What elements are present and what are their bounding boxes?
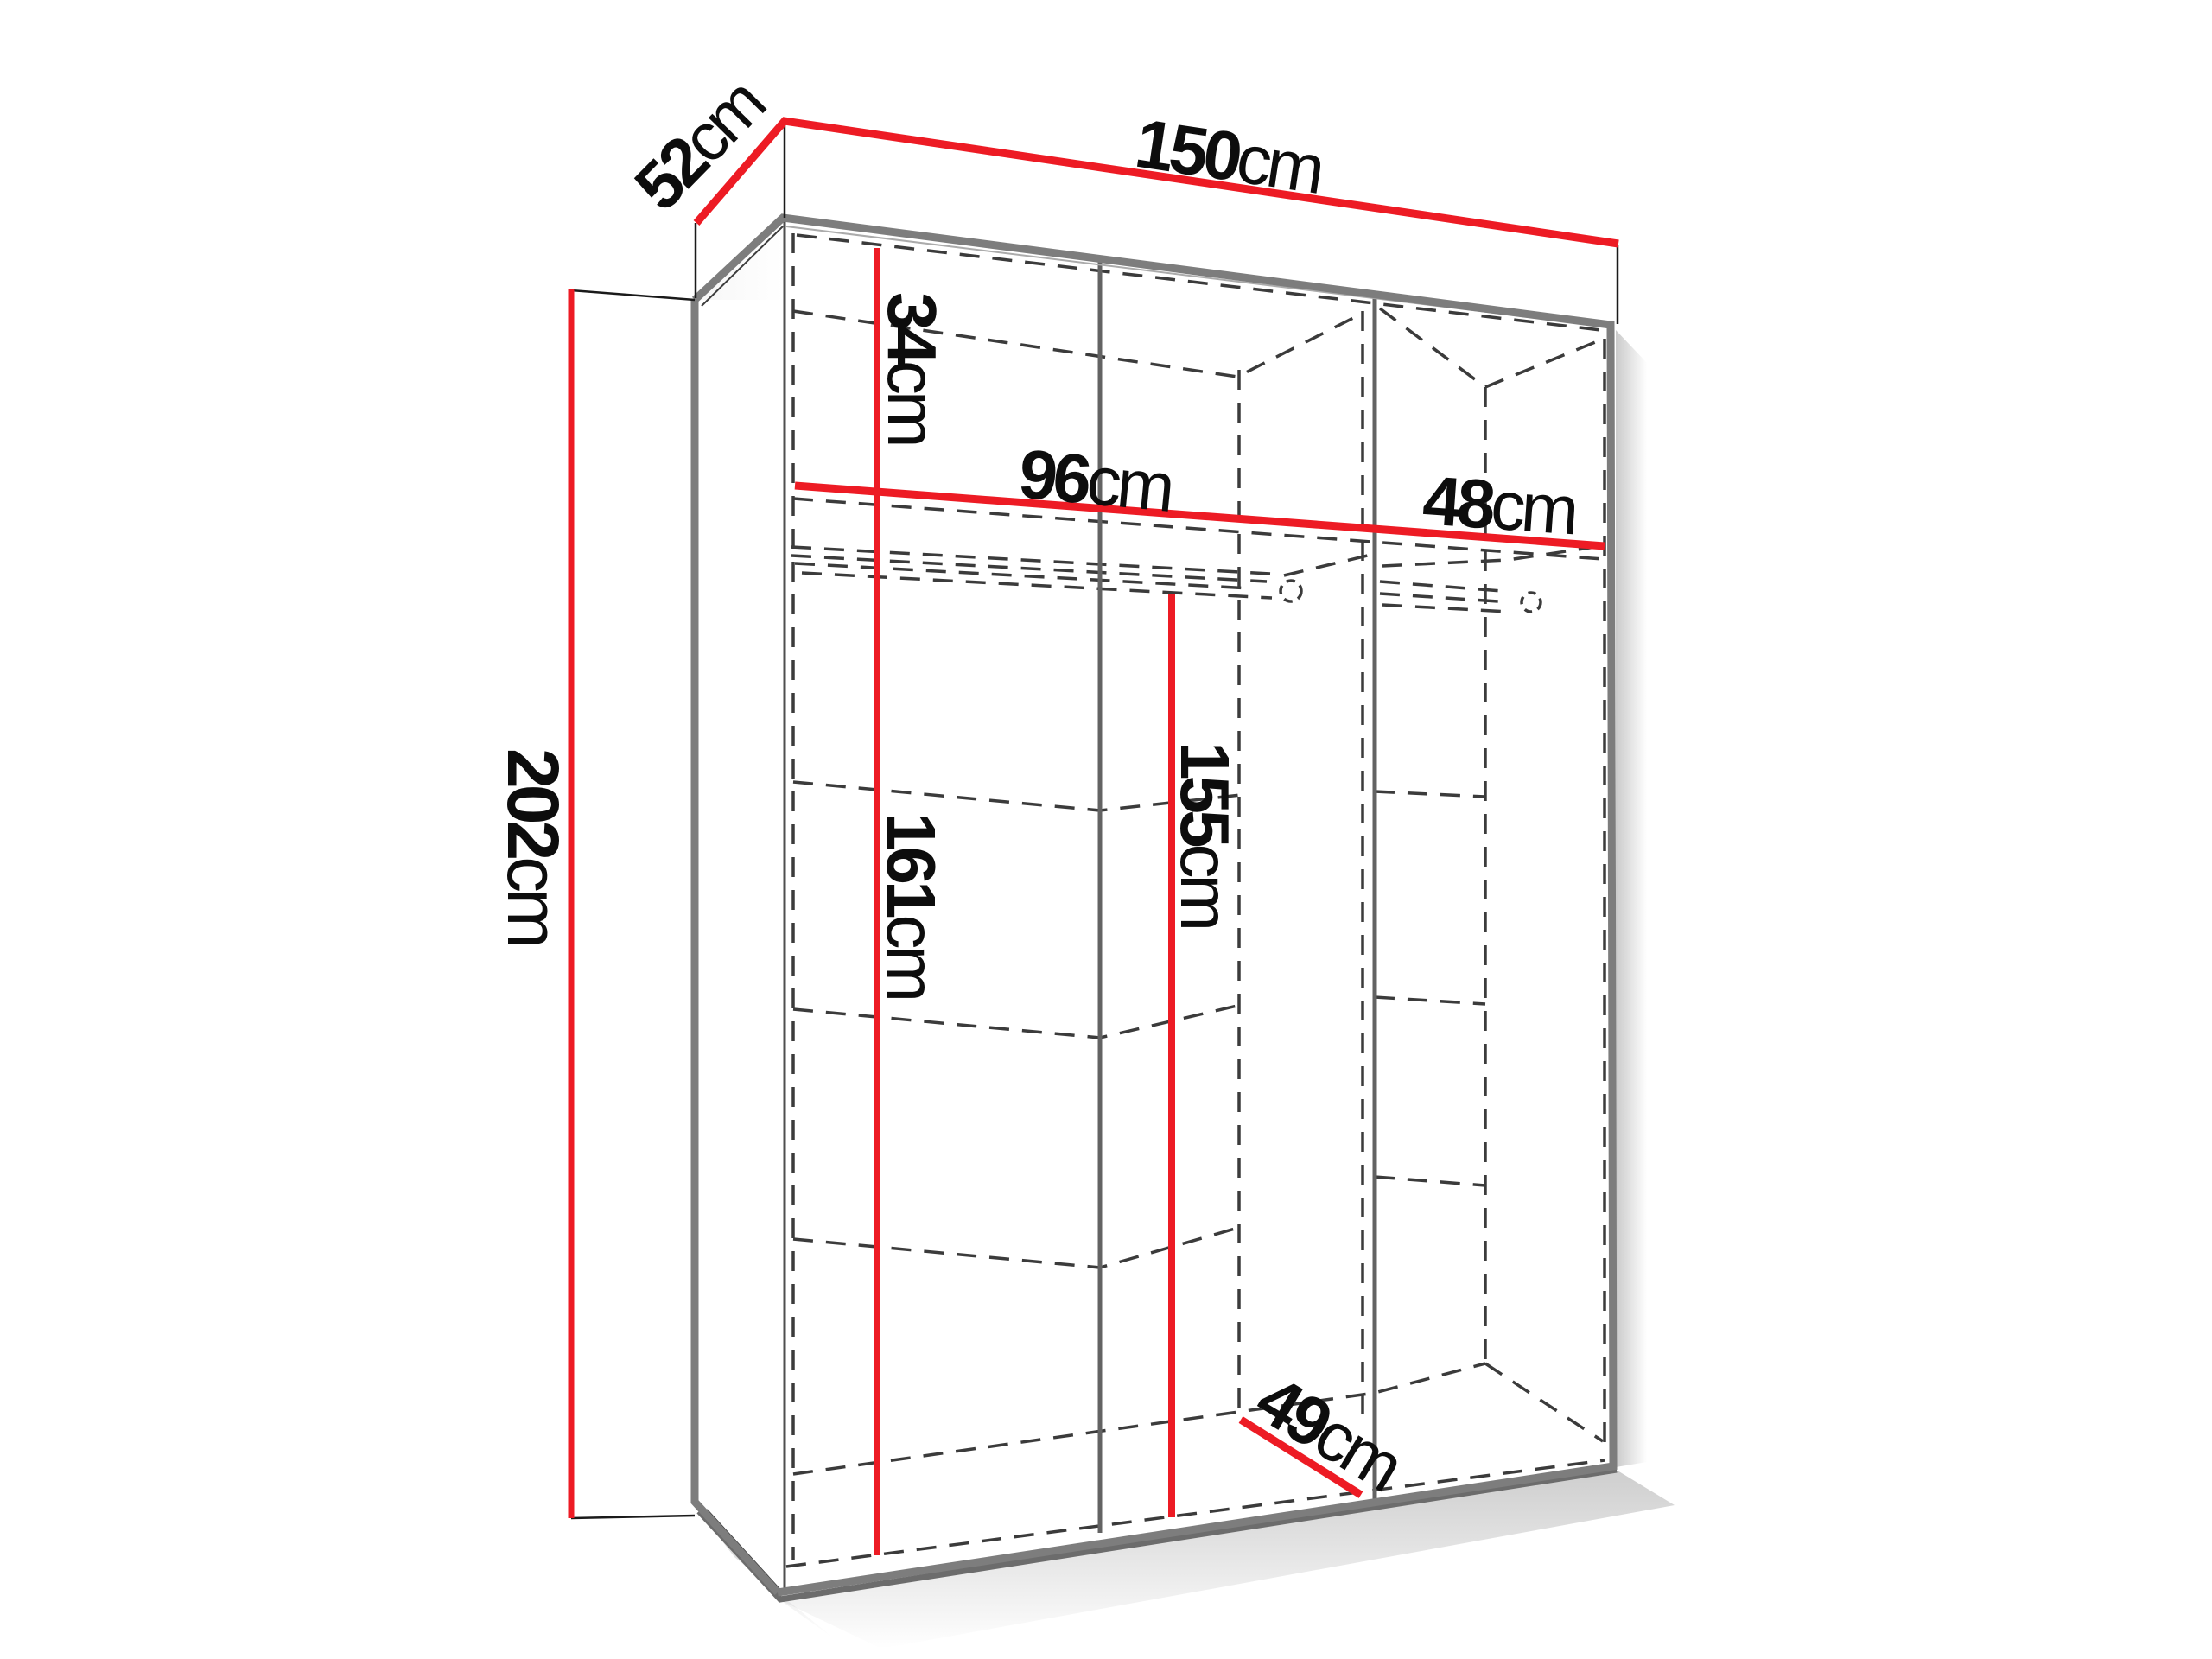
svg-text:49cm: 49cm [1243,1360,1414,1504]
svg-text:48cm: 48cm [1421,461,1578,549]
svg-text:155cm: 155cm [1166,741,1243,927]
svg-text:52cm: 52cm [620,66,777,224]
svg-text:150cm: 150cm [1130,105,1325,208]
svg-text:202cm: 202cm [493,748,574,944]
svg-text:34cm: 34cm [874,292,950,444]
svg-text:161cm: 161cm [873,812,950,998]
svg-text:96cm: 96cm [1015,435,1174,525]
